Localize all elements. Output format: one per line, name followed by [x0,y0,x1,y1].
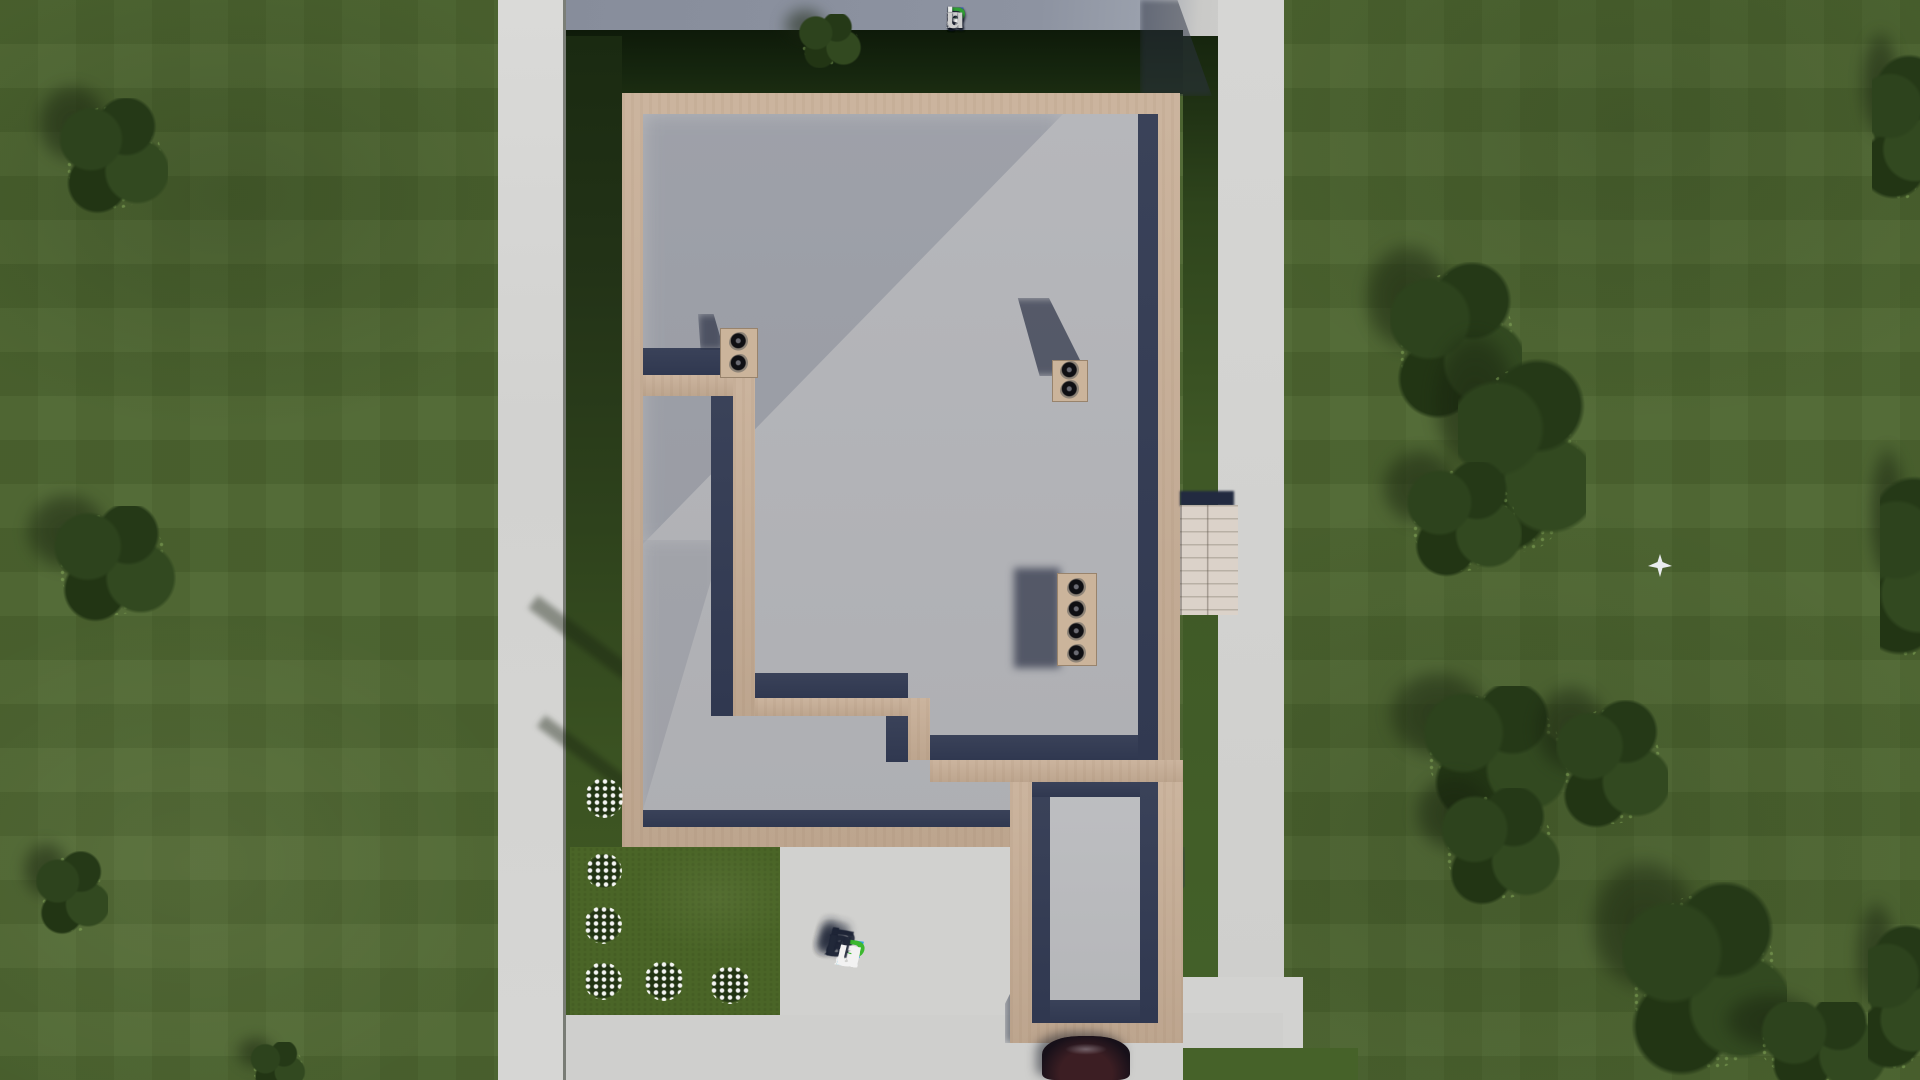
grass-bottom-right [1183,1048,1358,1080]
wall-shadow-bottom [643,810,1010,827]
partition-wall [755,698,908,716]
wood-porch [1180,505,1238,615]
tree-canopy [1876,60,1920,201]
tree-canopy [1872,930,1920,1071]
wall-shadow [1140,782,1158,1023]
logo-letter: u [946,2,965,36]
hedge-tree [1868,920,1920,1080]
wall-shadow [711,396,733,716]
tree-canopy [58,513,169,615]
chimney [1057,573,1097,666]
porch-shadow [1180,491,1234,506]
hedge-tree [1880,470,1920,670]
chimney-flue [729,332,751,354]
tree-canopy [800,17,858,65]
car [1042,1036,1130,1080]
chimney-flue [729,354,751,376]
chimney [1052,360,1088,402]
tree-canopy [40,856,103,932]
pavement-bottom-court [780,847,1032,1015]
tree [796,14,862,68]
tree [36,851,108,937]
bird-icon [1646,554,1674,578]
wall-shadow [886,716,908,762]
pavement-left-strip [498,0,566,1080]
shadowed-grass-top [566,30,1183,94]
tree [58,98,168,216]
flower-bush [580,902,626,948]
tree-canopy [1445,795,1552,899]
tree [1404,462,1522,578]
partition-wall [930,760,1183,782]
hedge-tree [1872,50,1920,210]
partition-wall [643,375,733,396]
tree [50,506,176,622]
chimney-flue [1067,622,1089,644]
pavement-right-walkway [1218,0,1284,980]
flower-bush [582,849,626,893]
wall-shadow [755,673,908,698]
wall-shadow [930,735,1138,760]
partition-wall [733,375,755,716]
tree-canopy [1411,469,1515,571]
chimney-flue [1067,600,1089,622]
chimney-flue [1060,380,1082,402]
wall-shadow-right [1138,114,1158,827]
wall-shadow [1032,797,1050,1023]
flower-bush [640,957,688,1005]
tree [248,1042,306,1080]
partition-wall [908,698,930,760]
chimney-flue [1067,644,1089,666]
chimney [720,328,758,378]
flower-bush [580,958,626,1004]
flower-bush [581,774,627,822]
render-canvas: FixPlans.ru FixPlans.ru FixPlans.ru [0,0,1920,1080]
tree-canopy [1563,708,1662,824]
flower-bush [706,962,754,1008]
chimney-shadow [1014,568,1060,668]
tree-canopy [251,1045,302,1080]
tree [1556,700,1668,832]
tree [1438,788,1560,906]
tree-canopy [65,105,162,209]
tree-canopy [1883,482,1920,658]
chimney-flue [1067,578,1089,600]
